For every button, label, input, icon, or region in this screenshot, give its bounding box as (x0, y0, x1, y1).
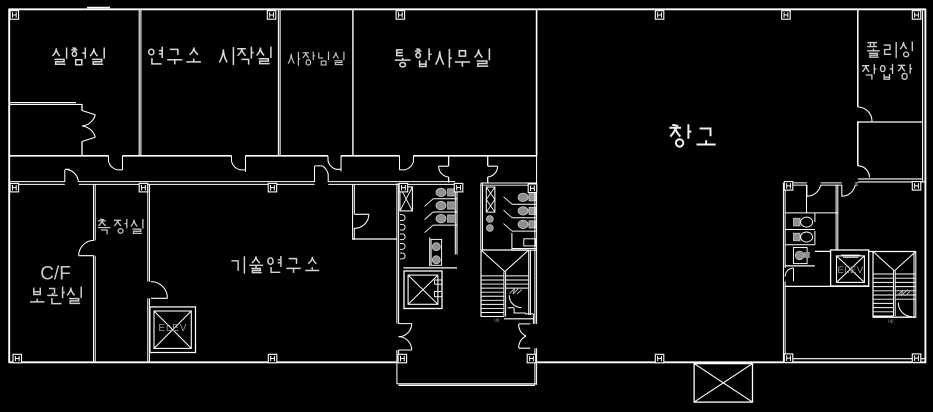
svg-text:C/F: C/F (40, 264, 71, 285)
svg-text:ELEV: ELEV (158, 323, 187, 334)
svg-text:ELEV: ELEV (837, 265, 863, 276)
svg-text:up: up (888, 319, 894, 325)
svg-text:up: up (494, 318, 500, 324)
